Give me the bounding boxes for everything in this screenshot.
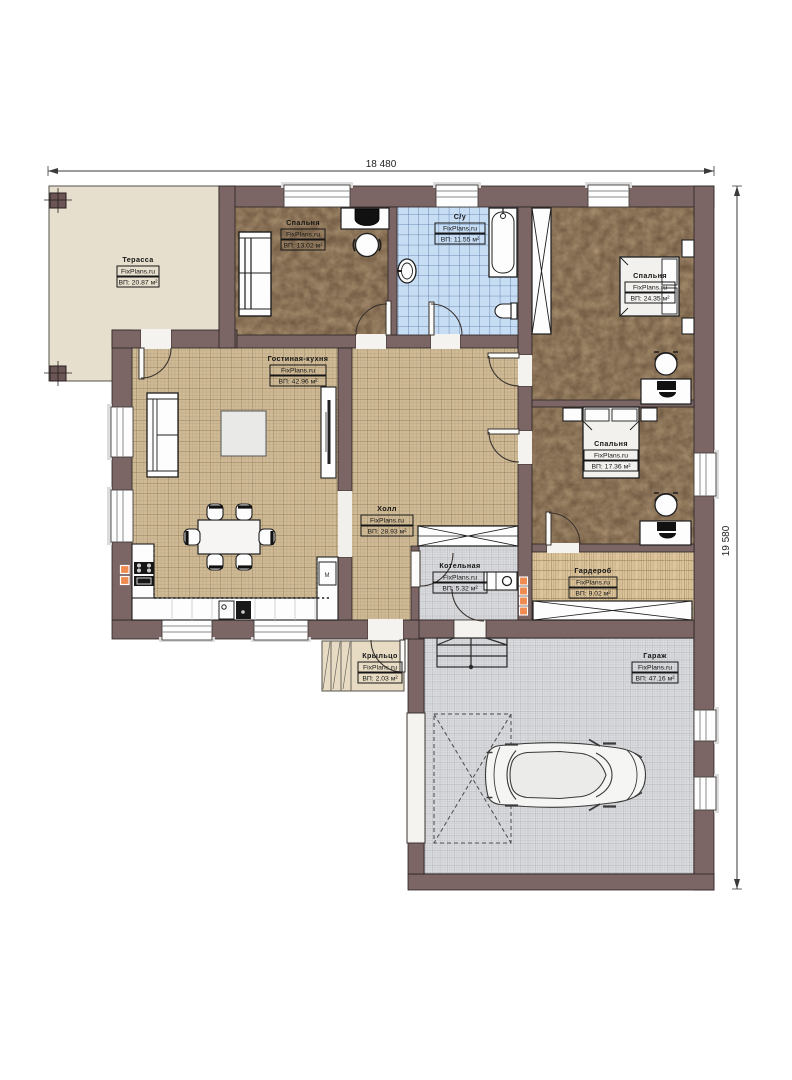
- svg-text:FixPlans.ru: FixPlans.ru: [281, 368, 315, 375]
- svg-text:ВП: 28.93 м²: ВП: 28.93 м²: [367, 529, 407, 536]
- svg-text:ВП: 5.32 м²: ВП: 5.32 м²: [442, 586, 478, 593]
- svg-text:FixPlans.ru: FixPlans.ru: [121, 269, 155, 276]
- svg-text:Крыльцо: Крыльцо: [362, 651, 398, 660]
- svg-text:ВП: 24.35 м²: ВП: 24.35 м²: [630, 296, 670, 303]
- svg-text:ВП: 17.36 м²: ВП: 17.36 м²: [591, 464, 631, 471]
- svg-text:Спальня: Спальня: [633, 271, 667, 280]
- svg-text:Котельная: Котельная: [439, 561, 480, 570]
- svg-text:FixPlans.ru: FixPlans.ru: [576, 580, 610, 587]
- svg-text:FixPlans.ru: FixPlans.ru: [370, 518, 404, 525]
- svg-text:FixPlans.ru: FixPlans.ru: [363, 665, 397, 672]
- svg-text:ВП: 11.55 м²: ВП: 11.55 м²: [441, 237, 480, 244]
- svg-text:FixPlans.ru: FixPlans.ru: [638, 665, 672, 672]
- svg-text:M: M: [325, 573, 330, 579]
- svg-text:Холл: Холл: [377, 504, 397, 513]
- svg-text:FixPlans.ru: FixPlans.ru: [286, 232, 320, 239]
- svg-text:19 580: 19 580: [721, 525, 732, 556]
- svg-text:Спальня: Спальня: [594, 439, 628, 448]
- svg-text:ВП: 13.02 м²: ВП: 13.02 м²: [283, 243, 323, 250]
- svg-text:FixPlans.ru: FixPlans.ru: [443, 226, 477, 233]
- svg-text:Гостиная-кухня: Гостиная-кухня: [268, 354, 329, 363]
- svg-text:С/у: С/у: [454, 212, 466, 221]
- svg-text:ВП: 20.87 м²: ВП: 20.87 м²: [118, 280, 158, 287]
- svg-text:FixPlans.ru: FixPlans.ru: [594, 453, 628, 460]
- svg-text:ВП: 47.16 м²: ВП: 47.16 м²: [635, 676, 675, 683]
- svg-text:FixPlans.ru: FixPlans.ru: [633, 285, 667, 292]
- svg-text:Спальня: Спальня: [286, 218, 320, 227]
- svg-text:ВП: 9.02 м²: ВП: 9.02 м²: [575, 591, 611, 598]
- svg-text:FixPlans.ru: FixPlans.ru: [443, 575, 477, 582]
- svg-text:ВП: 42.96 м²: ВП: 42.96 м²: [278, 379, 318, 386]
- svg-text:Гараж: Гараж: [643, 651, 667, 660]
- svg-text:Терасса: Терасса: [122, 255, 154, 264]
- svg-text:ВП: 2.03 м²: ВП: 2.03 м²: [362, 676, 398, 683]
- svg-text:Гардероб: Гардероб: [574, 566, 611, 575]
- svg-text:18 480: 18 480: [366, 159, 397, 170]
